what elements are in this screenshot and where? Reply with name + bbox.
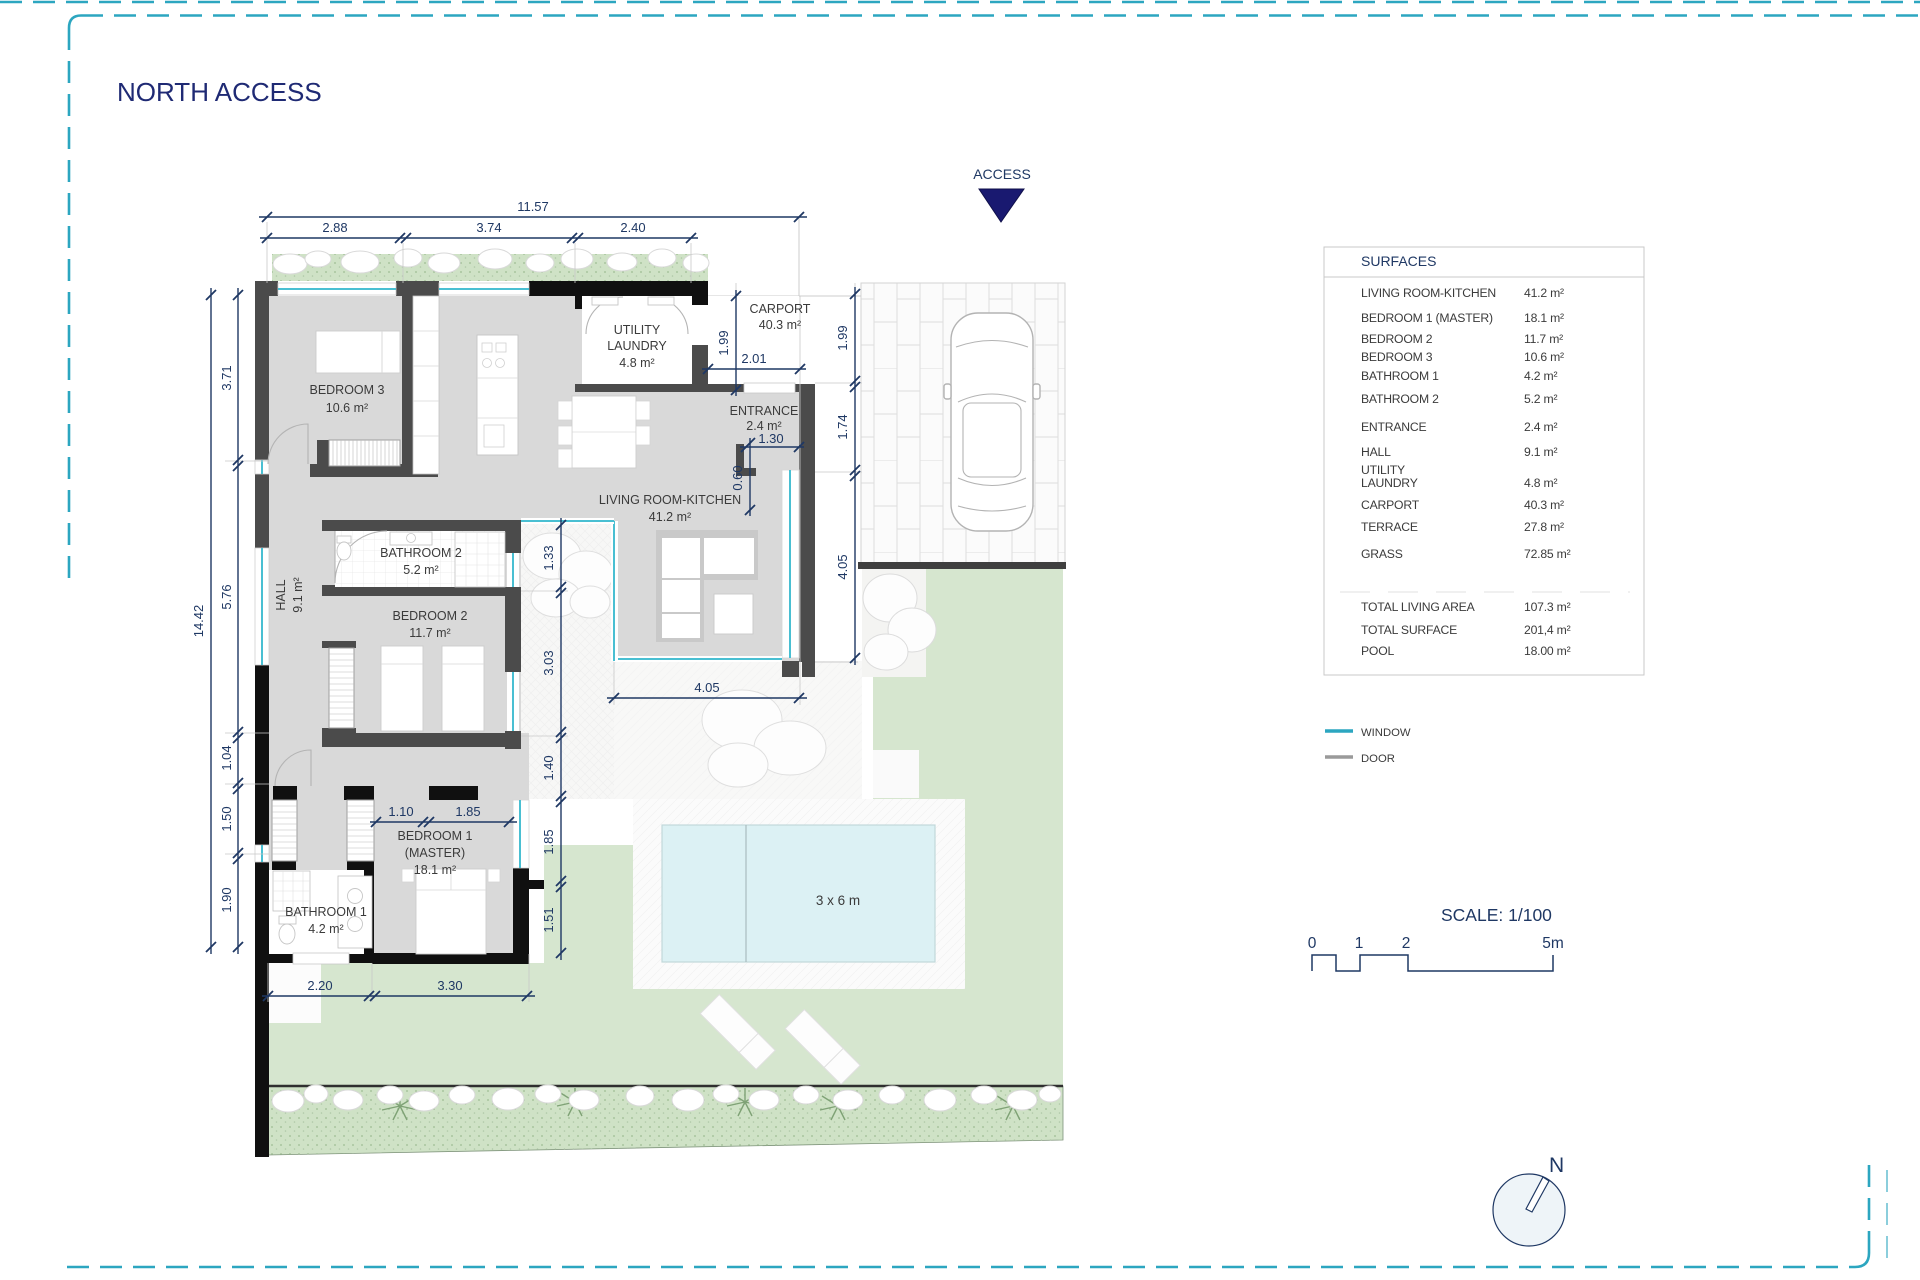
svg-text:11.7 m²: 11.7 m²: [1524, 332, 1563, 346]
svg-text:11.7 m²: 11.7 m²: [409, 626, 450, 640]
svg-text:ENTRANCE: ENTRANCE: [1361, 420, 1427, 434]
svg-text:5.2 m²: 5.2 m²: [1524, 392, 1557, 406]
svg-text:1.04: 1.04: [219, 745, 234, 770]
svg-text:0.60: 0.60: [730, 465, 745, 490]
svg-text:41.2 m²: 41.2 m²: [649, 510, 691, 524]
svg-text:5m: 5m: [1542, 935, 1564, 952]
svg-text:4.2 m²: 4.2 m²: [1524, 369, 1557, 383]
svg-text:1.33: 1.33: [541, 545, 556, 570]
svg-text:1.30: 1.30: [758, 431, 783, 446]
svg-text:BATHROOM 1: BATHROOM 1: [285, 905, 367, 919]
svg-text:BEDROOM 2: BEDROOM 2: [392, 609, 467, 623]
svg-text:2: 2: [1402, 935, 1411, 952]
svg-text:11.57: 11.57: [517, 199, 549, 214]
svg-text:BEDROOM 1: BEDROOM 1: [397, 829, 472, 843]
svg-text:4.2 m²: 4.2 m²: [308, 922, 343, 936]
svg-text:LAUNDRY: LAUNDRY: [1361, 476, 1418, 490]
svg-text:HALL: HALL: [1361, 445, 1391, 459]
svg-text:40.3 m²: 40.3 m²: [1524, 498, 1564, 512]
svg-text:LAUNDRY: LAUNDRY: [607, 339, 667, 353]
svg-text:1.74: 1.74: [835, 414, 850, 439]
svg-text:POOL: POOL: [1361, 644, 1394, 658]
svg-text:UTILITY: UTILITY: [614, 323, 661, 337]
svg-text:WINDOW: WINDOW: [1361, 727, 1411, 739]
svg-text:BEDROOM 3: BEDROOM 3: [309, 383, 384, 397]
svg-text:41.2 m²: 41.2 m²: [1524, 286, 1564, 300]
svg-text:201,4 m²: 201,4 m²: [1524, 623, 1571, 637]
svg-text:2.40: 2.40: [620, 220, 645, 235]
svg-text:72.85 m²: 72.85 m²: [1524, 547, 1571, 561]
svg-text:0: 0: [1308, 935, 1317, 952]
svg-text:3.03: 3.03: [541, 650, 556, 675]
svg-text:1: 1: [1355, 935, 1364, 952]
svg-text:1.99: 1.99: [716, 330, 731, 355]
svg-text:CARPORT: CARPORT: [750, 302, 811, 316]
svg-text:LIVING ROOM-KITCHEN: LIVING ROOM-KITCHEN: [1361, 286, 1496, 300]
svg-text:TERRACE: TERRACE: [1361, 520, 1418, 534]
svg-text:1.10: 1.10: [388, 804, 413, 819]
svg-text:4.8 m²: 4.8 m²: [619, 356, 654, 370]
svg-text:N: N: [1549, 1154, 1564, 1177]
svg-text:18.1 m²: 18.1 m²: [1524, 311, 1564, 325]
svg-text:18.1 m²: 18.1 m²: [414, 863, 456, 877]
svg-text:10.6 m²: 10.6 m²: [326, 401, 368, 415]
svg-text:TOTAL SURFACE: TOTAL SURFACE: [1361, 623, 1457, 637]
svg-text:SCALE: 1/100: SCALE: 1/100: [1441, 905, 1552, 925]
svg-text:1.40: 1.40: [541, 755, 556, 780]
svg-text:BATHROOM 1: BATHROOM 1: [1361, 369, 1439, 383]
svg-text:4.8 m²: 4.8 m²: [1524, 476, 1557, 490]
svg-text:1.90: 1.90: [219, 887, 234, 912]
svg-text:1.85: 1.85: [541, 829, 556, 854]
svg-text:9.1 m²: 9.1 m²: [1524, 445, 1557, 459]
svg-text:SURFACES: SURFACES: [1361, 253, 1436, 269]
svg-text:3.30: 3.30: [437, 978, 462, 993]
svg-text:NORTH ACCESS: NORTH ACCESS: [117, 77, 322, 107]
svg-text:ENTRANCE: ENTRANCE: [730, 404, 799, 418]
svg-text:5.76: 5.76: [219, 584, 234, 609]
svg-text:ACCESS: ACCESS: [973, 166, 1031, 182]
svg-text:3.71: 3.71: [219, 365, 234, 390]
svg-text:1.85: 1.85: [455, 804, 480, 819]
svg-text:CARPORT: CARPORT: [1361, 498, 1420, 512]
svg-text:BEDROOM 2: BEDROOM 2: [1361, 332, 1433, 346]
svg-text:14.42: 14.42: [191, 605, 206, 638]
svg-text:40.3 m²: 40.3 m²: [759, 318, 801, 332]
svg-text:HALL: HALL: [274, 579, 288, 610]
svg-text:2.20: 2.20: [307, 978, 332, 993]
svg-text:1.50: 1.50: [219, 806, 234, 831]
svg-text:5.2 m²: 5.2 m²: [403, 563, 438, 577]
svg-text:1.99: 1.99: [835, 325, 850, 350]
svg-text:4.05: 4.05: [694, 680, 719, 695]
svg-text:2.4 m²: 2.4 m²: [1524, 420, 1557, 434]
svg-text:GRASS: GRASS: [1361, 547, 1403, 561]
svg-text:2.01: 2.01: [741, 351, 766, 366]
svg-text:27.8 m²: 27.8 m²: [1524, 520, 1564, 534]
svg-text:DOOR: DOOR: [1361, 753, 1395, 765]
svg-text:3 x 6 m: 3 x 6 m: [816, 893, 860, 908]
svg-text:4.05: 4.05: [835, 554, 850, 579]
svg-text:UTILITY: UTILITY: [1361, 463, 1405, 477]
svg-text:LIVING ROOM-KITCHEN: LIVING ROOM-KITCHEN: [599, 493, 741, 507]
svg-text:(MASTER): (MASTER): [405, 846, 465, 860]
svg-text:18.00 m²: 18.00 m²: [1524, 644, 1571, 658]
svg-text:2.4 m²: 2.4 m²: [746, 419, 781, 433]
svg-text:BATHROOM 2: BATHROOM 2: [1361, 392, 1439, 406]
svg-text:1.51: 1.51: [541, 907, 556, 932]
svg-text:10.6 m²: 10.6 m²: [1524, 350, 1564, 364]
svg-text:TOTAL LIVING AREA: TOTAL LIVING AREA: [1361, 600, 1476, 614]
svg-text:107.3 m²: 107.3 m²: [1524, 600, 1571, 614]
svg-text:9.1 m²: 9.1 m²: [291, 577, 305, 612]
svg-text:3.74: 3.74: [476, 220, 501, 235]
svg-text:BEDROOM 1 (MASTER): BEDROOM 1 (MASTER): [1361, 311, 1493, 325]
svg-text:BEDROOM 3: BEDROOM 3: [1361, 350, 1433, 364]
svg-text:BATHROOM 2: BATHROOM 2: [380, 546, 462, 560]
svg-text:2.88: 2.88: [322, 220, 347, 235]
